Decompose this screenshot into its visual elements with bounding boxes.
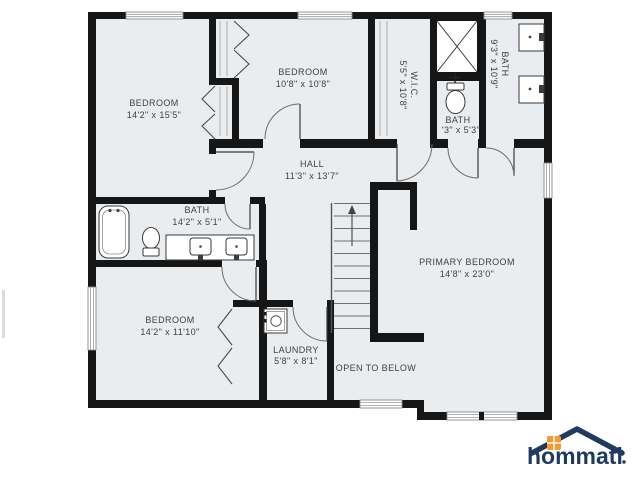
window-left-bedroom3 [88, 287, 96, 350]
window-right-primary [544, 163, 552, 198]
room-name: OPEN TO BELOW [336, 363, 416, 373]
room-name: W.I.C. [409, 72, 419, 99]
room-dims: 14'8" x 23'0" [440, 269, 495, 279]
sink-icon-bath-right-2 [519, 76, 544, 103]
room-label-open-to-below: OPEN TO BELOW [336, 363, 416, 373]
logo-period [622, 460, 625, 463]
room-label-laundry: LAUNDRY 5'8" x 8'1" [273, 345, 319, 366]
shower-icon [435, 19, 479, 83]
room-dims: 10'8" x 10'8" [276, 79, 331, 89]
toilet-icon-small-bath [446, 83, 465, 114]
window-bottom-primary [447, 412, 517, 420]
room-name: BEDROOM [129, 98, 178, 108]
room-name: BATH [446, 115, 471, 125]
room-name: HALL [300, 159, 324, 169]
washer-icon [264, 309, 287, 333]
watermark [2, 290, 5, 338]
room-name: BATH [185, 205, 210, 215]
floor-plan: BEDROOM 14'2" x 15'5" BEDROOM 10'8" x 10… [0, 0, 640, 480]
room-name: LAUNDRY [273, 345, 319, 355]
room-dims: 5'5" x 10'8" [398, 60, 408, 109]
room-dims: 5'8" x 8'1" [274, 356, 318, 366]
window-top-bedroom2 [298, 12, 352, 19]
room-dims: '3" x 5'3" [442, 125, 480, 135]
window-bottom-open-below [360, 400, 402, 408]
hommati-logo: hommati [527, 429, 626, 469]
room-name: BEDROOM [145, 315, 194, 325]
vanity-bath-left [166, 235, 254, 260]
bathtub-icon [99, 206, 129, 258]
room-dims: 11'3" x 13'7" [285, 171, 339, 181]
room-dims: 9'3" x 10'9" [489, 39, 499, 88]
window-top-bedroom1 [126, 12, 183, 19]
room-dims: 14'2" x 11'10" [140, 327, 199, 337]
room-name: BEDROOM [278, 67, 327, 77]
logo-text: hommati [527, 443, 623, 469]
window-top-bath [484, 12, 512, 19]
sink-icon-bath-right-1 [519, 24, 544, 51]
room-name: BATH [500, 52, 510, 77]
room-name: PRIMARY BEDROOM [419, 257, 515, 267]
room-dims: 14'2" x 5'1" [172, 217, 221, 227]
toilet-icon-bath-left [143, 228, 160, 257]
room-dims: 14'2" x 15'5" [127, 110, 182, 120]
